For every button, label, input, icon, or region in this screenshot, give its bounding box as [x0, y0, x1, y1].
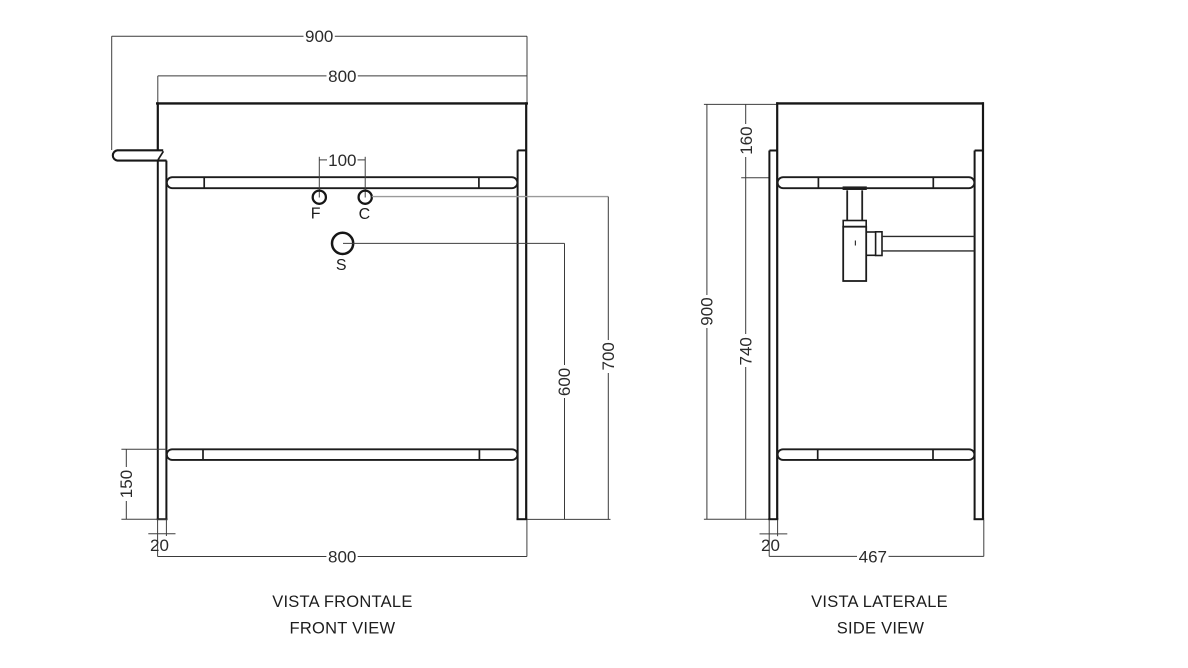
svg-text:150: 150	[117, 470, 136, 498]
svg-text:467: 467	[859, 547, 887, 566]
svg-text:700: 700	[599, 342, 618, 370]
svg-text:F: F	[311, 205, 321, 222]
svg-text:FRONT VIEW: FRONT VIEW	[290, 620, 396, 638]
svg-text:SIDE VIEW: SIDE VIEW	[837, 620, 925, 638]
svg-text:20: 20	[761, 536, 780, 555]
svg-text:VISTA FRONTALE: VISTA FRONTALE	[272, 593, 412, 611]
svg-text:600: 600	[555, 368, 574, 396]
svg-text:800: 800	[328, 67, 356, 86]
svg-text:20: 20	[150, 536, 169, 555]
svg-text:C: C	[359, 206, 371, 223]
svg-text:160: 160	[737, 126, 756, 154]
svg-text:800: 800	[328, 548, 356, 567]
svg-text:740: 740	[736, 337, 755, 365]
svg-text:100: 100	[328, 151, 356, 170]
svg-text:900: 900	[698, 297, 717, 325]
svg-text:S: S	[336, 257, 347, 274]
svg-text:VISTA LATERALE: VISTA LATERALE	[811, 593, 948, 611]
svg-text:900: 900	[305, 27, 333, 46]
